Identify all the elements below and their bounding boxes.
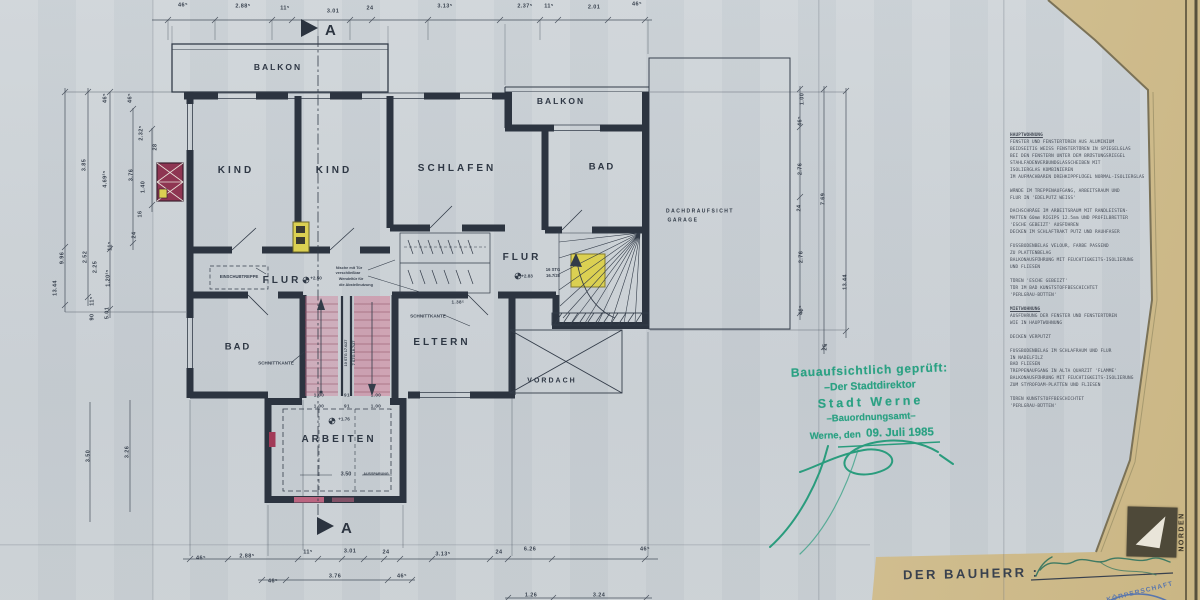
spec-line: 'PERLGRAU-BÜTTEN' [1010, 404, 1150, 411]
north-triangle [1126, 506, 1177, 557]
spec-line: UND FLIESEN [1010, 265, 1150, 272]
spec-line: BEI DEN FENSTERN UNTER DEM BRÜSTUNGSRIEG… [1010, 154, 1150, 161]
section-marker-a-top: A [301, 19, 336, 39]
stamp-date: 09. Juli 1985 [866, 426, 934, 439]
spec-line: TÜR IM BAD KUNSTSTOFFBESCHICHTET [1010, 286, 1150, 293]
spec-line: BEIDSEITIG WEISS FENSTERTÜREN IN SPIEGEL… [1010, 147, 1150, 154]
spec-line: WIE IN HAUPTWOHNUNG [1010, 321, 1150, 328]
spec-line: AUSFÜHRUNG DER FENSTER UND FENSTERTÜREN [1010, 314, 1150, 321]
svg-text:A: A [325, 22, 336, 39]
bauherr-label: DER BAUHERR : [903, 565, 1040, 583]
spec-blank-line [1010, 182, 1150, 189]
spec-line: IM AUFMACHBAREN DREHKIPPFLÜGEL NORMAL-IS… [1010, 175, 1150, 182]
spec-line: MIETWOHNUNG [1010, 307, 1150, 314]
spec-line: FUSSBODENBELAG IM SCHLAFRAUM UND FLUR [1010, 349, 1150, 356]
spec-line: ISOLIERGLAS KOMBINIEREN [1010, 168, 1150, 175]
spec-line: STAHLFADENVERBUNDGLASSCHEIBEN MIT [1010, 161, 1150, 168]
spec-line: ZUM STYROFOAM-PLATTEN UND FLIESEN [1010, 383, 1150, 390]
stamp-city-label: Werne, den [810, 429, 861, 442]
section-marker-a-bottom: A [317, 517, 352, 537]
blueprint-scan: A A BALKONKINDKINDSCHLAFENBADBALKONFLURF… [0, 0, 1200, 600]
approval-stamp: Bauaufsichtlich geprüft: –Der Stadtdirek… [782, 360, 960, 443]
spec-blank-line [1010, 342, 1150, 349]
spec-line: DECKEN VERPUTZT [1010, 335, 1150, 342]
spec-line: FENSTER UND FENSTERTÜREN AUS ALUMINIUM [1010, 140, 1150, 147]
spec-blank-line [1010, 300, 1150, 307]
spec-blank-line [1010, 272, 1150, 279]
spec-line: WÄNDE IM TREPPENAUFGANG, ARBEITSRAUM UND [1010, 189, 1150, 196]
north-label: NORDEN [1179, 512, 1186, 551]
spec-line: FLUR IN 'EDELPUTZ WEISS' [1010, 196, 1150, 203]
stamp-line: –Bauordnungsamt– [783, 409, 958, 426]
spec-line: DECKEN IM SCHLAFTRAKT PUTZ UND RAUHFASER [1010, 230, 1150, 237]
north-arrow-icon [1126, 506, 1177, 557]
specification-text: HAUPTWOHNUNGFENSTER UND FENSTERTÜREN AUS… [1010, 133, 1150, 411]
svg-text:A: A [341, 520, 352, 537]
spec-blank-line [1010, 328, 1150, 335]
spec-line: 'PERLGRAU-BÜTTEN' [1010, 293, 1150, 300]
spec-line: TÜREN 'ESCHE GEBEIZT' [1010, 279, 1150, 286]
spec-line: HAUPTWOHNUNG [1010, 133, 1150, 140]
